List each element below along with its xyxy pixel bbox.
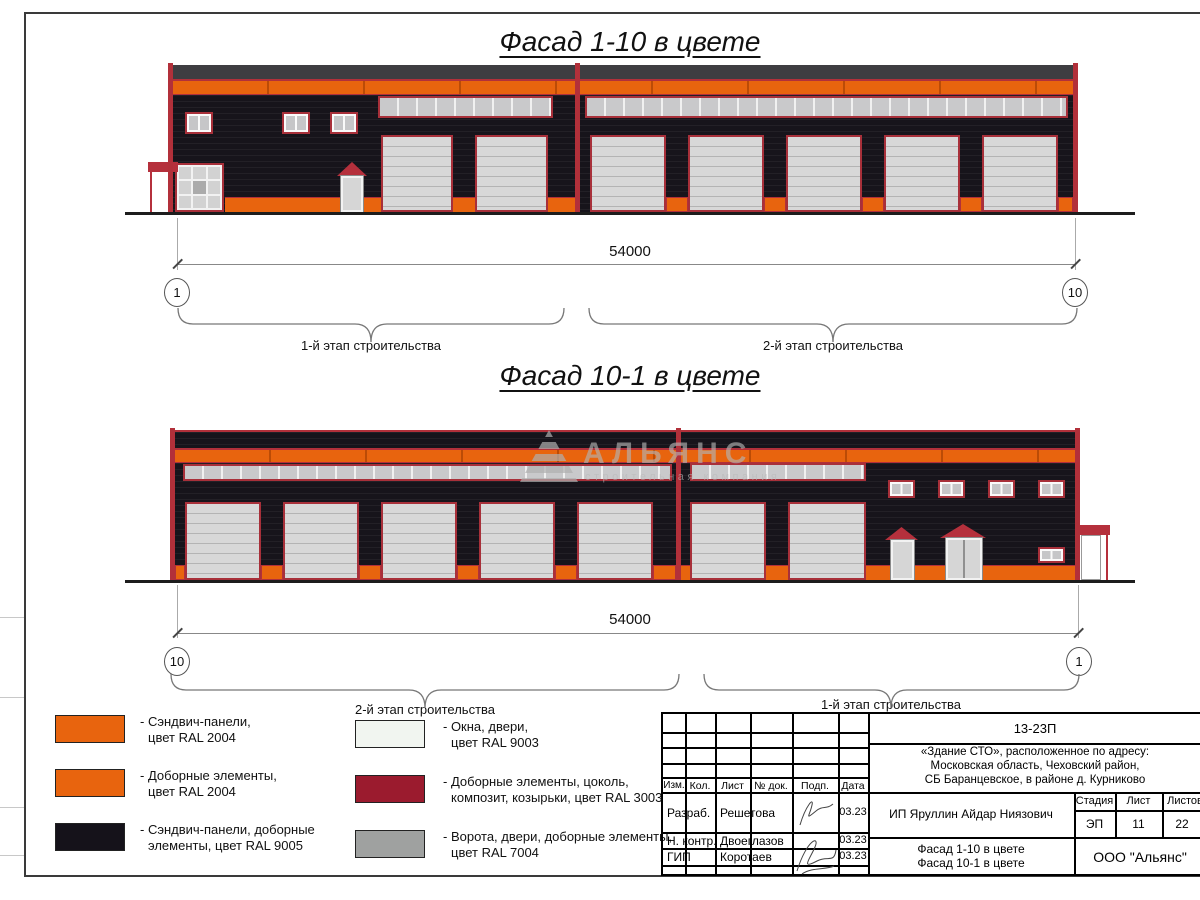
garage-door <box>381 135 453 212</box>
legend-line: - Доборные элементы, <box>140 768 277 783</box>
legend-swatch-trim-ral2004 <box>55 769 125 797</box>
legend-label: - Сэндвич-панели,цвет RAL 2004 <box>140 714 251 746</box>
garage-door <box>475 135 548 212</box>
entrance-door <box>341 176 363 212</box>
legend-line: цвет RAL 7004 <box>443 845 672 861</box>
legend-line: - Сэндвич-панели, доборные <box>140 822 315 837</box>
small-window <box>185 112 213 134</box>
sheets-value: 22 <box>1162 817 1200 831</box>
col-header-list: Лист <box>715 780 750 792</box>
garage-door <box>788 502 866 580</box>
orange-plinth-block <box>359 565 381 580</box>
legend-label: - Ворота, двери, доборные элементы,цвет … <box>443 829 672 861</box>
canopy-post <box>1106 535 1108 580</box>
row-name: Решетова <box>720 806 775 820</box>
glass-pane <box>208 196 220 208</box>
dimension-line <box>177 264 1075 265</box>
orange-plinth-block <box>862 197 884 212</box>
stage-brace-right <box>588 306 1078 346</box>
orange-plinth-block <box>1058 197 1073 212</box>
garage-door <box>577 502 653 580</box>
dimension-line <box>177 633 1078 634</box>
entrance-canopy <box>148 162 178 172</box>
col-header-izm: Изм. <box>663 780 685 791</box>
glass-pane <box>193 167 205 179</box>
canopy-column <box>1081 535 1101 580</box>
document-code: 13-23П <box>868 721 1200 736</box>
garage-door <box>185 502 261 580</box>
legend-line: - Сэндвич-панели, <box>140 714 251 729</box>
garage-door <box>381 502 457 580</box>
glass-pane <box>193 196 205 208</box>
grid-line <box>663 732 868 734</box>
margin-line <box>0 697 24 698</box>
doc-title-line1: Фасад 1-10 в цвете <box>868 842 1074 856</box>
margin-line <box>0 855 24 856</box>
small-window <box>938 480 965 498</box>
frame-top-border <box>24 12 1200 14</box>
orange-plinth-block <box>764 197 786 212</box>
garage-door <box>283 502 359 580</box>
glass-pane <box>208 167 220 179</box>
signature <box>796 795 836 829</box>
glass-pane <box>208 181 220 193</box>
grid-line <box>663 792 868 794</box>
canopy-post <box>150 172 152 212</box>
row-date: 03.23 <box>838 850 868 862</box>
margin-line <box>0 617 24 618</box>
project-address-line3: СБ Баранцевское, в районе д. Курниково <box>868 774 1200 786</box>
title-block: 13-23П «Здание СТО», расположенное по ад… <box>661 712 1200 876</box>
garage-door <box>786 135 862 212</box>
glazed-entrance <box>175 163 224 212</box>
small-window <box>988 480 1015 498</box>
grid-line <box>663 763 868 765</box>
axis-marker-left: 1 <box>164 278 190 307</box>
project-address-line1: «Здание СТО», расположенное по адресу: <box>868 746 1200 758</box>
glass-pane <box>179 167 191 179</box>
col-header-data: Дата <box>838 780 868 792</box>
orange-plinth-block <box>555 565 577 580</box>
garage-door <box>884 135 960 212</box>
legend-label: - Доборные элементы,цвет RAL 2004 <box>140 768 277 800</box>
doc-title-line2: Фасад 10-1 в цвете <box>868 856 1074 870</box>
facade-10-1-title: Фасад 10-1 в цвете <box>125 360 1135 392</box>
grid-line <box>663 777 868 779</box>
facade-10-1-drawing: АЛЬЯНС строительная компания <box>125 425 1135 587</box>
legend-line: композит, козырьки, цвет RAL 3003 <box>443 790 662 806</box>
row-date: 03.23 <box>838 806 868 818</box>
double-entrance-door <box>946 538 982 580</box>
small-window <box>282 112 310 134</box>
legend-line: цвет RAL 2004 <box>140 730 251 746</box>
stage-brace-right <box>703 672 1080 712</box>
row-role: Разраб. <box>667 806 710 820</box>
legend-label: - Окна, двери,цвет RAL 9003 <box>443 719 539 751</box>
red-stage-divider-post <box>575 63 580 212</box>
legend-line: цвет RAL 2004 <box>140 784 277 800</box>
orange-plinth-block <box>175 565 185 580</box>
ground-line <box>125 580 1135 583</box>
entrance-door <box>891 540 914 580</box>
grid-line <box>715 714 717 874</box>
sheets-label: Листов <box>1162 795 1200 807</box>
facade-1-10-dimension: 54000 1 10 1-й этап строительства 2-й эт… <box>125 216 1135 356</box>
grid-line <box>868 743 1200 745</box>
small-window <box>1038 547 1065 563</box>
small-window <box>1038 480 1065 498</box>
legend-swatch-sandwich-ral9005 <box>55 823 125 851</box>
stage-label: Стадия <box>1074 795 1115 807</box>
signature <box>793 833 839 877</box>
legend-swatch-sandwich-ral2004 <box>55 715 125 743</box>
row-name: Коротаев <box>720 850 772 864</box>
watermark-name: АЛЬЯНС <box>583 437 753 471</box>
garage-door <box>479 502 555 580</box>
legend-line: - Доборные элементы, цоколь, <box>443 774 629 789</box>
red-corner-post <box>168 63 173 212</box>
col-header-podp: Подп. <box>792 780 838 792</box>
legend-label: - Доборные элементы, цоколь,композит, ко… <box>443 774 662 806</box>
drawing-sheet: { "titles": { "facade1": "Фасад 1-10 в ц… <box>0 0 1200 900</box>
legend-swatch-plinth-ral3003 <box>355 775 425 803</box>
facade-1-10-drawing <box>125 60 1135 218</box>
stage-value: ЭП <box>1074 817 1115 831</box>
sheet-value: 11 <box>1115 817 1162 831</box>
legend-line: - Окна, двери, <box>443 719 528 734</box>
legend-line: - Ворота, двери, доборные элементы, <box>443 829 672 844</box>
row-role: ГИП <box>667 850 691 864</box>
col-header-kol: Кол. <box>685 780 715 792</box>
orange-plinth-block <box>666 197 688 212</box>
company-name: ООО "Альянс" <box>1078 849 1200 865</box>
grid-line <box>1074 810 1200 812</box>
watermark-subtitle: строительная компания <box>585 471 780 483</box>
row-role: Н. контр. <box>667 834 717 848</box>
ground-line <box>125 212 1135 215</box>
facade-10-1-dimension: 54000 10 1 2-й этап строительства 1-й эт… <box>125 583 1135 723</box>
grid-line <box>663 747 868 749</box>
stage-brace-left <box>177 306 565 346</box>
col-header-doc: № док. <box>750 780 792 792</box>
garage-door <box>688 135 764 212</box>
orange-plinth-block <box>960 197 982 212</box>
project-address-line2: Московская область, Чеховский район, <box>868 760 1200 772</box>
clerestory-band-stage1 <box>378 96 553 118</box>
legend-line: цвет RAL 9003 <box>443 735 539 751</box>
legend-swatch-windows-ral9003 <box>355 720 425 748</box>
red-corner-post <box>170 428 175 580</box>
frame-left-border <box>24 12 26 877</box>
legend-swatch-gates-ral7004 <box>355 830 425 858</box>
grid-line <box>868 837 1200 839</box>
small-window <box>888 480 915 498</box>
garage-door <box>590 135 666 212</box>
margin-line <box>0 807 24 808</box>
red-corner-post <box>1075 428 1080 580</box>
garage-door <box>690 502 766 580</box>
orange-plinth-block <box>653 565 676 580</box>
dimension-value: 54000 <box>125 243 1135 260</box>
dimension-value: 54000 <box>125 611 1135 628</box>
stage-brace-left <box>170 672 680 712</box>
orange-plinth-block <box>261 565 283 580</box>
row-name: Двоеглазов <box>720 834 784 848</box>
small-window <box>330 112 358 134</box>
legend-line: элементы, цвет RAL 9005 <box>140 838 315 854</box>
glass-pane <box>179 181 191 193</box>
side-canopy <box>1080 525 1110 535</box>
garage-door <box>982 135 1058 212</box>
legend-label: - Сэндвич-панели, доборныеэлементы, цвет… <box>140 822 315 854</box>
row-date: 03.23 <box>838 834 868 846</box>
grid-line <box>868 792 1200 794</box>
orange-top-band <box>173 79 1073 95</box>
glass-door-pane <box>193 181 205 193</box>
facade-1-10-title: Фасад 1-10 в цвете <box>125 26 1135 58</box>
axis-marker-right: 10 <box>1062 278 1088 307</box>
red-corner-post <box>1073 63 1078 212</box>
clerestory-band-stage2 <box>585 96 1068 118</box>
client-name: ИП Яруллин Айдар Ниязович <box>868 807 1074 821</box>
sheet-label: Лист <box>1115 795 1162 807</box>
glass-pane <box>179 196 191 208</box>
roof-band <box>168 65 1078 79</box>
orange-plinth-block <box>457 565 479 580</box>
